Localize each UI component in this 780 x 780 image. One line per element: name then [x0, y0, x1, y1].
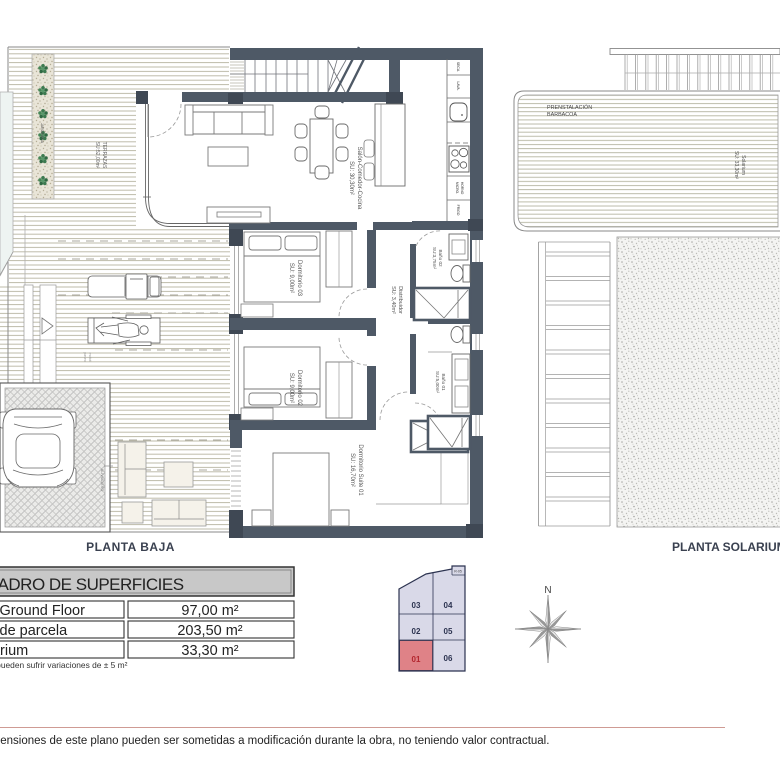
svg-text:Dormitorio 02: Dormitorio 02: [296, 370, 302, 407]
svg-text:HORNO: HORNO: [460, 182, 464, 195]
svg-text:Distribuidor: Distribuidor: [397, 286, 403, 314]
svg-text:LAVA.: LAVA.: [456, 81, 460, 90]
svg-text:Solarium: Solarium: [740, 155, 746, 175]
svg-text:SU: 30,30m²: SU: 30,30m²: [348, 161, 354, 195]
svg-text:Dormitorio 03: Dormitorio 03: [296, 260, 302, 297]
svg-text:Baño 01: Baño 01: [441, 373, 446, 391]
svg-text:97,00 m²: 97,00 m²: [181, 603, 238, 619]
svg-text:Las superficies pueden sufrir: Las superficies pueden sufrir variacione…: [0, 660, 128, 670]
svg-text:BARBACOA: BARBACOA: [547, 112, 577, 118]
svg-text:SU: 16,70m²: SU: 16,70m²: [349, 453, 355, 487]
svg-text:06: 06: [444, 654, 453, 663]
svg-text:CUADRO DE SUPERFICIES: CUADRO DE SUPERFICIES: [0, 575, 184, 594]
svg-text:PLANTA SOLARIUM: PLANTA SOLARIUM: [672, 540, 780, 554]
svg-text:SU: 9,00m²: SU: 9,00m²: [288, 263, 294, 293]
svg-text:PRENSTALACIÓN: PRENSTALACIÓN: [547, 104, 592, 111]
svg-text:02: 02: [412, 627, 421, 636]
svg-text:SU:52,00m²: SU:52,00m²: [94, 142, 100, 169]
svg-text:SECA.: SECA.: [456, 62, 460, 72]
svg-text:R-05: R-05: [454, 570, 462, 574]
svg-text:33,30 m²: 33,30 m²: [181, 643, 238, 659]
svg-text:Las dimensiones de este plano: Las dimensiones de este plano pueden ser…: [0, 735, 549, 747]
svg-text:TERRAZAS: TERRAZAS: [101, 142, 107, 169]
svg-text:03: 03: [412, 601, 421, 610]
svg-text:04: 04: [444, 601, 453, 610]
svg-text:JARDINERA: JARDINERA: [40, 123, 44, 144]
svg-text:SU:3,75m²: SU:3,75m²: [432, 247, 437, 269]
svg-text:PLANTA BAJA: PLANTA BAJA: [86, 540, 175, 554]
svg-text:motot: motot: [88, 353, 92, 362]
svg-text:Superficie Ground Floor: Superficie Ground Floor: [0, 603, 85, 619]
svg-text:SU: 9,00m²: SU: 9,00m²: [288, 373, 294, 403]
svg-text:SU:5,00m²: SU:5,00m²: [435, 371, 440, 393]
svg-text:05: 05: [444, 627, 453, 636]
svg-text:203,50 m²: 203,50 m²: [177, 623, 242, 639]
svg-text:Salón-Comedor-Cocina: Salón-Comedor-Cocina: [356, 147, 362, 210]
svg-text:01: 01: [412, 655, 421, 664]
svg-text:Solarium: Solarium: [0, 643, 28, 659]
svg-text:N: N: [544, 585, 551, 596]
svg-text:SU: 3,40m²: SU: 3,40m²: [390, 286, 396, 314]
svg-text:Dormitorio Suite 01: Dormitorio Suite 01: [357, 444, 363, 496]
svg-text:paseo: paseo: [83, 352, 87, 362]
svg-text:ALIVIADERO: ALIVIADERO: [100, 469, 104, 492]
svg-text:MICRO.: MICRO.: [455, 182, 459, 194]
svg-text:Superficie de parcela: Superficie de parcela: [0, 623, 68, 639]
svg-text:FRIGO: FRIGO: [456, 205, 460, 216]
svg-text:SU: 33,30m²: SU: 33,30m²: [733, 151, 739, 179]
svg-text:Baño 02: Baño 02: [438, 249, 443, 267]
